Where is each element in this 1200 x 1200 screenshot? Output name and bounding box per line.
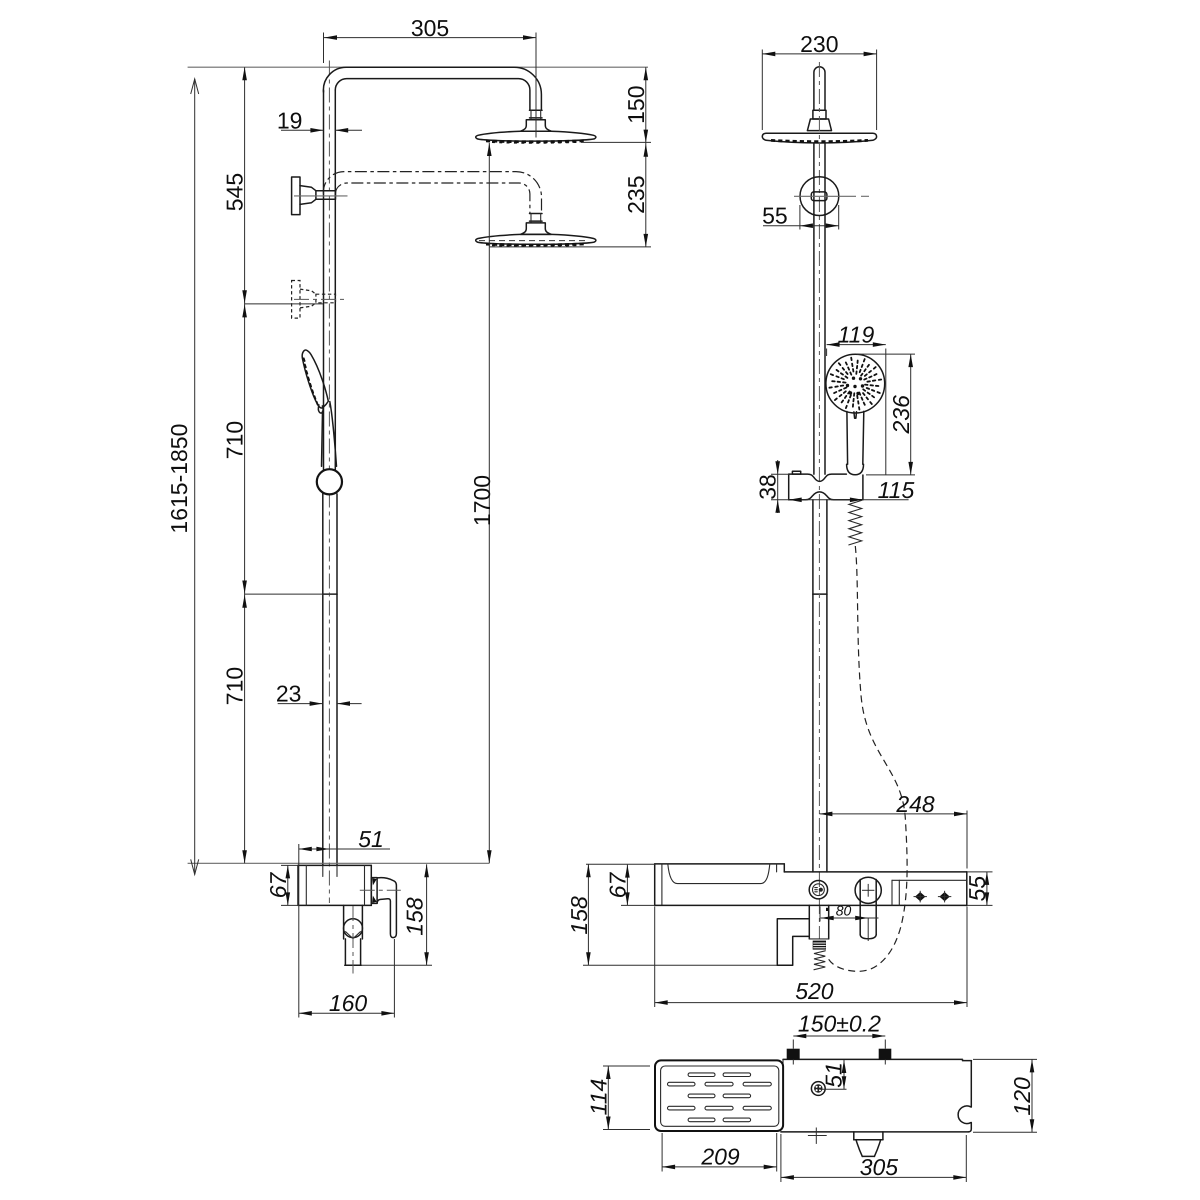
svg-text:1700: 1700 xyxy=(469,475,495,526)
svg-text:1615-1850: 1615-1850 xyxy=(166,424,192,534)
svg-text:236: 236 xyxy=(888,395,914,435)
svg-text:710: 710 xyxy=(222,667,248,705)
svg-text:248: 248 xyxy=(895,791,935,817)
svg-text:55: 55 xyxy=(762,203,788,229)
svg-text:67: 67 xyxy=(604,872,630,899)
svg-text:19: 19 xyxy=(277,107,303,133)
svg-text:51: 51 xyxy=(821,1062,847,1088)
svg-text:67: 67 xyxy=(265,872,291,899)
svg-text:150: 150 xyxy=(623,86,649,124)
svg-text:80: 80 xyxy=(836,903,852,919)
svg-text:55: 55 xyxy=(964,876,990,902)
svg-text:235: 235 xyxy=(623,176,649,214)
svg-text:209: 209 xyxy=(700,1143,740,1169)
svg-text:158: 158 xyxy=(402,897,428,936)
svg-text:710: 710 xyxy=(222,421,248,459)
svg-text:520: 520 xyxy=(795,978,834,1004)
svg-text:38: 38 xyxy=(755,474,781,500)
svg-text:305: 305 xyxy=(411,15,449,41)
svg-text:158: 158 xyxy=(566,896,592,935)
svg-text:120: 120 xyxy=(1009,1077,1035,1116)
svg-text:115: 115 xyxy=(878,477,915,503)
svg-text:114: 114 xyxy=(585,1079,611,1116)
svg-text:160: 160 xyxy=(329,990,368,1016)
svg-text:23: 23 xyxy=(276,681,302,707)
svg-text:150±0.2: 150±0.2 xyxy=(798,1010,881,1036)
svg-text:545: 545 xyxy=(222,173,248,211)
svg-text:51: 51 xyxy=(358,826,384,852)
svg-text:119: 119 xyxy=(838,322,875,348)
svg-text:230: 230 xyxy=(800,31,838,57)
svg-text:305: 305 xyxy=(860,1154,899,1180)
